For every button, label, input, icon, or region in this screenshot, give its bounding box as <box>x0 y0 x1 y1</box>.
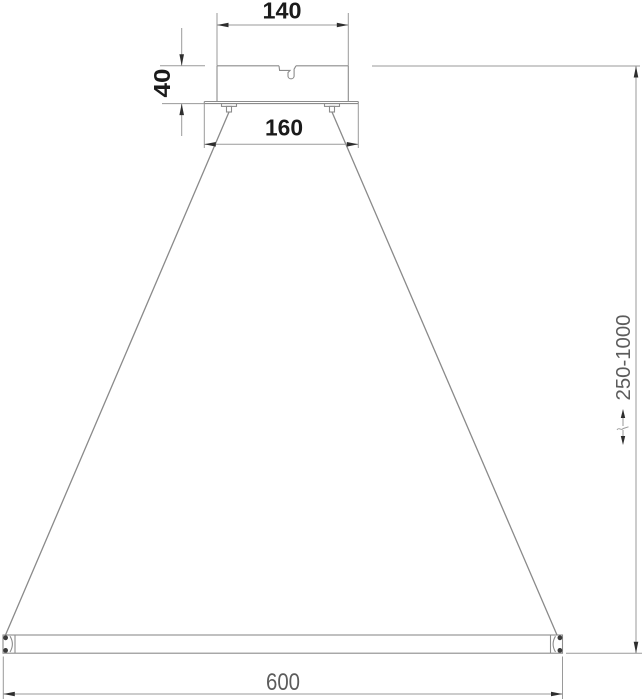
arrowhead-right-icon <box>551 692 563 697</box>
technical-drawing: 140 40 160 600 <box>0 0 642 700</box>
arrowhead-down-icon <box>179 54 184 66</box>
arrowhead-right-icon <box>347 142 359 147</box>
dim-label-suspension-height: 250-1000 <box>613 315 635 401</box>
arrowhead-left-icon <box>3 692 15 697</box>
end-cap-left-bottom-dot <box>3 648 8 653</box>
dim-label-bar-length: 600 <box>266 669 300 696</box>
cable-gripper-right <box>325 104 340 112</box>
light-bar-body <box>3 635 563 653</box>
height-adjust-indicator <box>617 409 629 445</box>
suspension-cable-right <box>332 112 557 635</box>
dim-label-canopy-width: 140 <box>263 0 302 24</box>
end-cap-right-top-dot <box>558 635 563 640</box>
end-cap-right-bottom-dot <box>558 648 563 653</box>
arrowhead-up-icon <box>634 66 639 78</box>
arrowhead-up-icon <box>179 104 184 116</box>
adjust-arrow-up-icon <box>621 409 625 418</box>
dim-canopy-height: 40 <box>149 28 205 136</box>
dim-label-plate-width: 160 <box>265 115 303 141</box>
suspension-cable-left <box>6 112 230 635</box>
dim-label-canopy-height: 40 <box>149 69 175 98</box>
arrowhead-down-icon <box>634 642 639 654</box>
dim-canopy-width: 140 <box>217 0 348 66</box>
drawing-canvas: 140 40 160 600 <box>0 0 642 700</box>
gripper-body <box>330 106 335 112</box>
adjust-tilde-icon <box>617 427 629 430</box>
arrowhead-left-icon <box>204 142 216 147</box>
cable-gripper-left <box>222 104 237 112</box>
canopy <box>217 66 348 102</box>
dim-suspension-height: 250-1000 <box>372 66 642 653</box>
adjust-arrow-down-icon <box>621 436 625 445</box>
keyhole-slot <box>279 66 296 79</box>
arrowhead-left-icon <box>217 23 229 28</box>
dim-bar-length: 600 <box>3 657 562 700</box>
end-cap-left-top-dot <box>3 635 8 640</box>
light-bar <box>3 635 563 653</box>
gripper-body <box>227 106 232 112</box>
arrowhead-right-icon <box>337 23 349 28</box>
